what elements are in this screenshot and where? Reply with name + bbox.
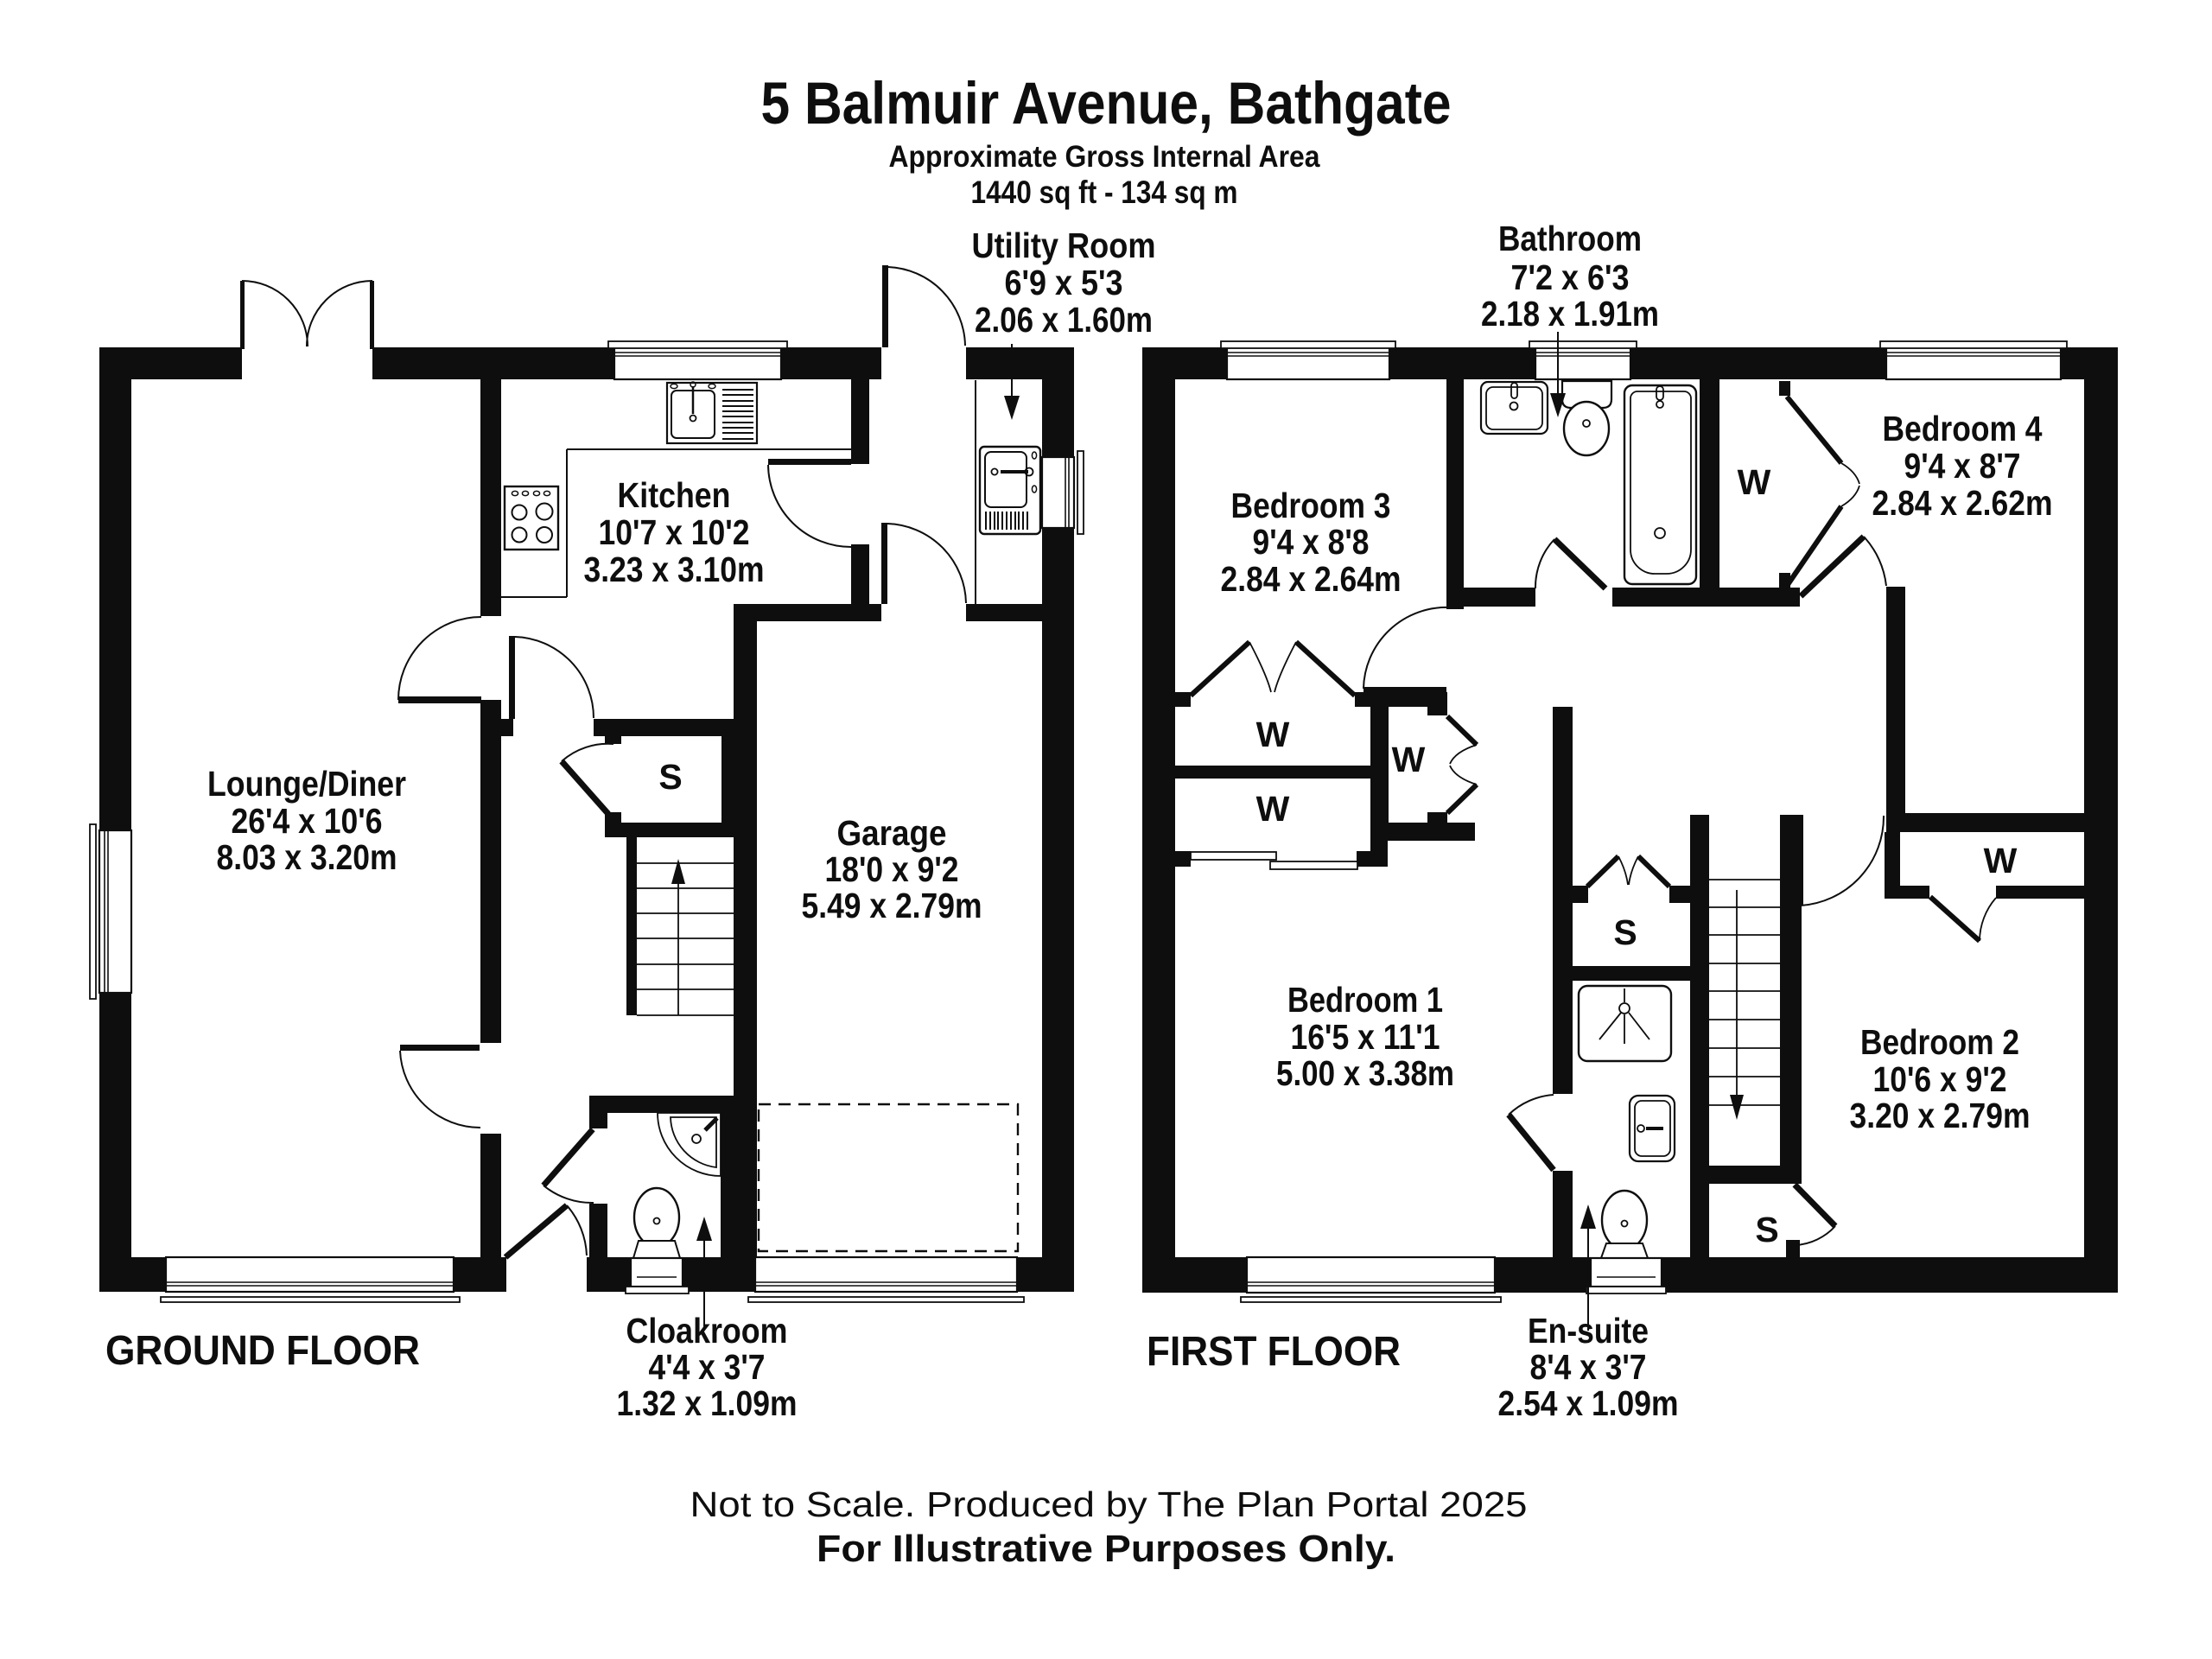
svg-text:Kitchen: Kitchen — [618, 475, 731, 515]
svg-text:2.06 x 1.60m: 2.06 x 1.60m — [975, 300, 1153, 340]
svg-text:8'4 x 3'7: 8'4 x 3'7 — [1530, 1347, 1647, 1387]
svg-text:1440 sq ft - 134 sq m: 1440 sq ft - 134 sq m — [971, 175, 1238, 210]
svg-text:3.23 x 3.10m: 3.23 x 3.10m — [584, 550, 765, 589]
svg-text:5 Balmuir Avenue, Bathgate: 5 Balmuir Avenue, Bathgate — [761, 70, 1452, 137]
svg-text:For Illustrative Purposes Only: For Illustrative Purposes Only. — [817, 1528, 1395, 1570]
svg-text:Bedroom 4: Bedroom 4 — [1883, 409, 2043, 448]
svg-text:En-suite: En-suite — [1528, 1311, 1649, 1351]
svg-text:Garage: Garage — [837, 813, 947, 853]
svg-text:Approximate Gross Internal Are: Approximate Gross Internal Area — [889, 140, 1320, 174]
svg-text:9'4 x 8'8: 9'4 x 8'8 — [1253, 522, 1370, 562]
svg-text:W: W — [1256, 715, 1290, 754]
svg-text:6'9 x 5'3: 6'9 x 5'3 — [1005, 263, 1123, 302]
svg-text:7'2 x 6'3: 7'2 x 6'3 — [1511, 257, 1630, 297]
svg-text:Bedroom 1: Bedroom 1 — [1287, 980, 1443, 1020]
svg-text:1.32 x 1.09m: 1.32 x 1.09m — [617, 1383, 798, 1423]
svg-text:18'0 x 9'2: 18'0 x 9'2 — [825, 849, 959, 889]
svg-text:W: W — [1392, 740, 1426, 779]
svg-text:Not to Scale. Produced by The: Not to Scale. Produced by The Plan Porta… — [690, 1484, 1528, 1524]
svg-text:5.49 x 2.79m: 5.49 x 2.79m — [802, 886, 982, 925]
svg-text:10'6 x 9'2: 10'6 x 9'2 — [1873, 1059, 2007, 1099]
svg-text:W: W — [1256, 789, 1290, 829]
svg-text:10'7 x 10'2: 10'7 x 10'2 — [599, 512, 750, 552]
svg-text:2.84 x 2.62m: 2.84 x 2.62m — [1872, 483, 2053, 523]
svg-text:Bedroom 2: Bedroom 2 — [1860, 1022, 2019, 1062]
svg-text:S: S — [1613, 912, 1637, 952]
svg-text:4'4 x 3'7: 4'4 x 3'7 — [649, 1347, 766, 1387]
svg-text:8.03 x 3.20m: 8.03 x 3.20m — [217, 837, 397, 877]
svg-text:26'4 x 10'6: 26'4 x 10'6 — [232, 801, 383, 841]
svg-text:Utility Room: Utility Room — [972, 226, 1156, 265]
svg-text:S: S — [658, 757, 682, 797]
svg-text:Bedroom 3: Bedroom 3 — [1231, 486, 1391, 525]
svg-text:W: W — [1984, 841, 2018, 880]
svg-text:Bathroom: Bathroom — [1498, 219, 1642, 258]
svg-text:2.54 x 1.09m: 2.54 x 1.09m — [1498, 1383, 1679, 1423]
svg-text:9'4 x 8'7: 9'4 x 8'7 — [1904, 446, 2021, 486]
svg-text:3.20 x 2.79m: 3.20 x 2.79m — [1850, 1096, 2031, 1135]
svg-text:5.00 x 3.38m: 5.00 x 3.38m — [1276, 1053, 1454, 1093]
svg-text:W: W — [1738, 462, 1771, 502]
svg-text:S: S — [1755, 1210, 1778, 1249]
svg-text:16'5 x 11'1: 16'5 x 11'1 — [1291, 1017, 1440, 1057]
svg-text:GROUND FLOOR: GROUND FLOOR — [105, 1328, 420, 1374]
svg-text:2.18 x 1.91m: 2.18 x 1.91m — [1481, 294, 1659, 334]
svg-text:Cloakroom: Cloakroom — [626, 1311, 788, 1351]
svg-text:Lounge/Diner: Lounge/Diner — [207, 764, 406, 804]
svg-text:2.84 x 2.64m: 2.84 x 2.64m — [1221, 559, 1402, 599]
svg-text:FIRST FLOOR: FIRST FLOOR — [1147, 1329, 1401, 1375]
